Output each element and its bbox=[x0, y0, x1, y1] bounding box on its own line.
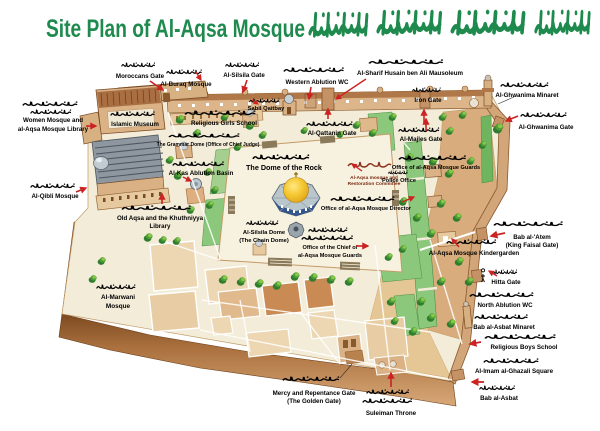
svg-text:Moroccans Gate: Moroccans Gate bbox=[116, 73, 165, 80]
svg-text:Al-Imam al-Ghazali Square: Al-Imam al-Ghazali Square bbox=[475, 368, 554, 375]
svg-text:(The Golden Gate): (The Golden Gate) bbox=[287, 398, 341, 405]
svg-text:Al-Ghwanima Minaret: Al-Ghwanima Minaret bbox=[495, 92, 558, 99]
svg-text:Al-Silsila Gate: Al-Silsila Gate bbox=[223, 72, 265, 79]
svg-text:(King Faisal Gate): (King Faisal Gate) bbox=[506, 242, 559, 249]
svg-text:Mosque: Mosque bbox=[106, 303, 131, 310]
svg-text:Al-Ghwanima Gate: Al-Ghwanima Gate bbox=[518, 124, 574, 131]
svg-text:Bab al-Asbat Minaret: Bab al-Asbat Minaret bbox=[473, 324, 535, 331]
svg-text:(The Chain Dome): (The Chain Dome) bbox=[239, 238, 289, 244]
svg-text:Office of al-Aqsa Mosque Guard: Office of al-Aqsa Mosque Guards bbox=[392, 165, 480, 171]
svg-text:Bab al-'Atem: Bab al-'Atem bbox=[513, 234, 551, 241]
svg-text:Hitta Gate: Hitta Gate bbox=[491, 279, 521, 286]
svg-text:Al-Buraq Mosque: Al-Buraq Mosque bbox=[160, 81, 212, 88]
svg-text:The Dome of the Rock: The Dome of the Rock bbox=[246, 163, 322, 172]
svg-text:Office of al-Aqsa Mosque Direc: Office of al-Aqsa Mosque Director bbox=[321, 206, 412, 212]
svg-text:Old Aqsa and the Khuthniyya: Old Aqsa and the Khuthniyya bbox=[117, 215, 204, 222]
svg-text:Library: Library bbox=[150, 223, 172, 230]
svg-text:al-Aqsa Mosque Guards: al-Aqsa Mosque Guards bbox=[298, 253, 362, 259]
svg-text:Al-Marwani: Al-Marwani bbox=[101, 294, 135, 301]
svg-text:Western Ablution WC: Western Ablution WC bbox=[286, 79, 349, 86]
svg-text:Islamic Museum: Islamic Museum bbox=[111, 121, 159, 128]
svg-text:Religious Girls School: Religious Girls School bbox=[191, 120, 257, 127]
svg-text:Women Mosque and: Women Mosque and bbox=[23, 117, 83, 124]
svg-text:Al-Kas Ablution Basin: Al-Kas Ablution Basin bbox=[169, 170, 234, 177]
svg-text:Sabil Qaitbay: Sabil Qaitbay bbox=[248, 106, 286, 112]
svg-text:Al-Majles Gate: Al-Majles Gate bbox=[400, 136, 443, 143]
svg-text:Iron Gate: Iron Gate bbox=[414, 97, 442, 104]
svg-text:Suleiman Throne: Suleiman Throne bbox=[366, 410, 417, 417]
svg-text:Al-Qattanin Gate: Al-Qattanin Gate bbox=[308, 130, 357, 137]
svg-text:Bab al-Asbat: Bab al-Asbat bbox=[480, 395, 518, 402]
svg-text:Office of the Chief of: Office of the Chief of bbox=[302, 245, 357, 251]
svg-text:Mercy and Repentance Gate: Mercy and Repentance Gate bbox=[273, 390, 356, 397]
svg-text:Al-Sharif Husain ben Ali Mauso: Al-Sharif Husain ben Ali Mausoleum bbox=[357, 70, 464, 77]
svg-text:Al-Qibli Mosque: Al-Qibli Mosque bbox=[31, 193, 79, 200]
svg-text:Site Plan of Al-Aqsa Mosque: Site Plan of Al-Aqsa Mosque bbox=[46, 15, 305, 43]
svg-text:Al-Aqsa Mosque Kindergarden: Al-Aqsa Mosque Kindergarden bbox=[429, 250, 520, 257]
svg-text:Police Office: Police Office bbox=[382, 178, 416, 184]
svg-text:Religious Boys School: Religious Boys School bbox=[490, 344, 557, 351]
svg-text:al-Aqsa Mosque Library: al-Aqsa Mosque Library bbox=[18, 126, 89, 133]
svg-text:The Grammar Dome (Office of Ch: The Grammar Dome (Office of Chief Judge) bbox=[157, 142, 260, 148]
svg-text:Al-Silsila Dome: Al-Silsila Dome bbox=[243, 230, 286, 236]
svg-text:North Ablution WC: North Ablution WC bbox=[477, 302, 533, 309]
